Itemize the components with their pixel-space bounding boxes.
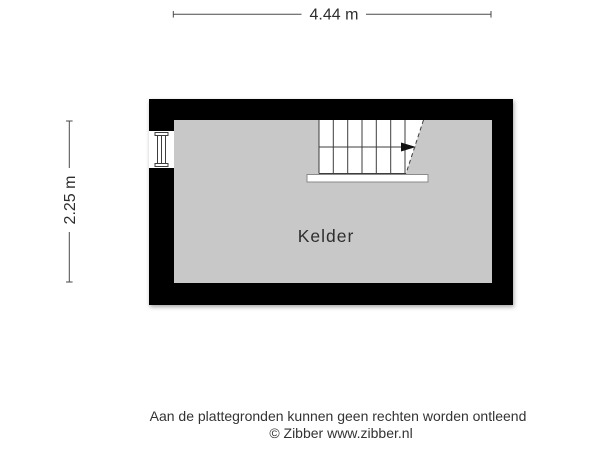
dimension-left-label: 2.25 m xyxy=(62,176,79,225)
dimension-left: 2.25 m xyxy=(62,121,79,282)
stair-threshold xyxy=(307,175,428,183)
dimension-top: 4.44 m xyxy=(173,7,491,24)
floorplan-canvas: 4.44 m 2.25 m xyxy=(0,0,600,450)
window-symbol xyxy=(149,131,174,168)
footer-disclaimer: Aan de plattegronden kunnen geen rechten… xyxy=(150,408,527,424)
room-label: Kelder xyxy=(298,226,355,246)
floorplan-page: 4.44 m 2.25 m xyxy=(0,0,600,450)
dimension-top-label: 4.44 m xyxy=(310,7,359,24)
footer-copyright: © Zibber www.zibber.nl xyxy=(269,425,412,441)
